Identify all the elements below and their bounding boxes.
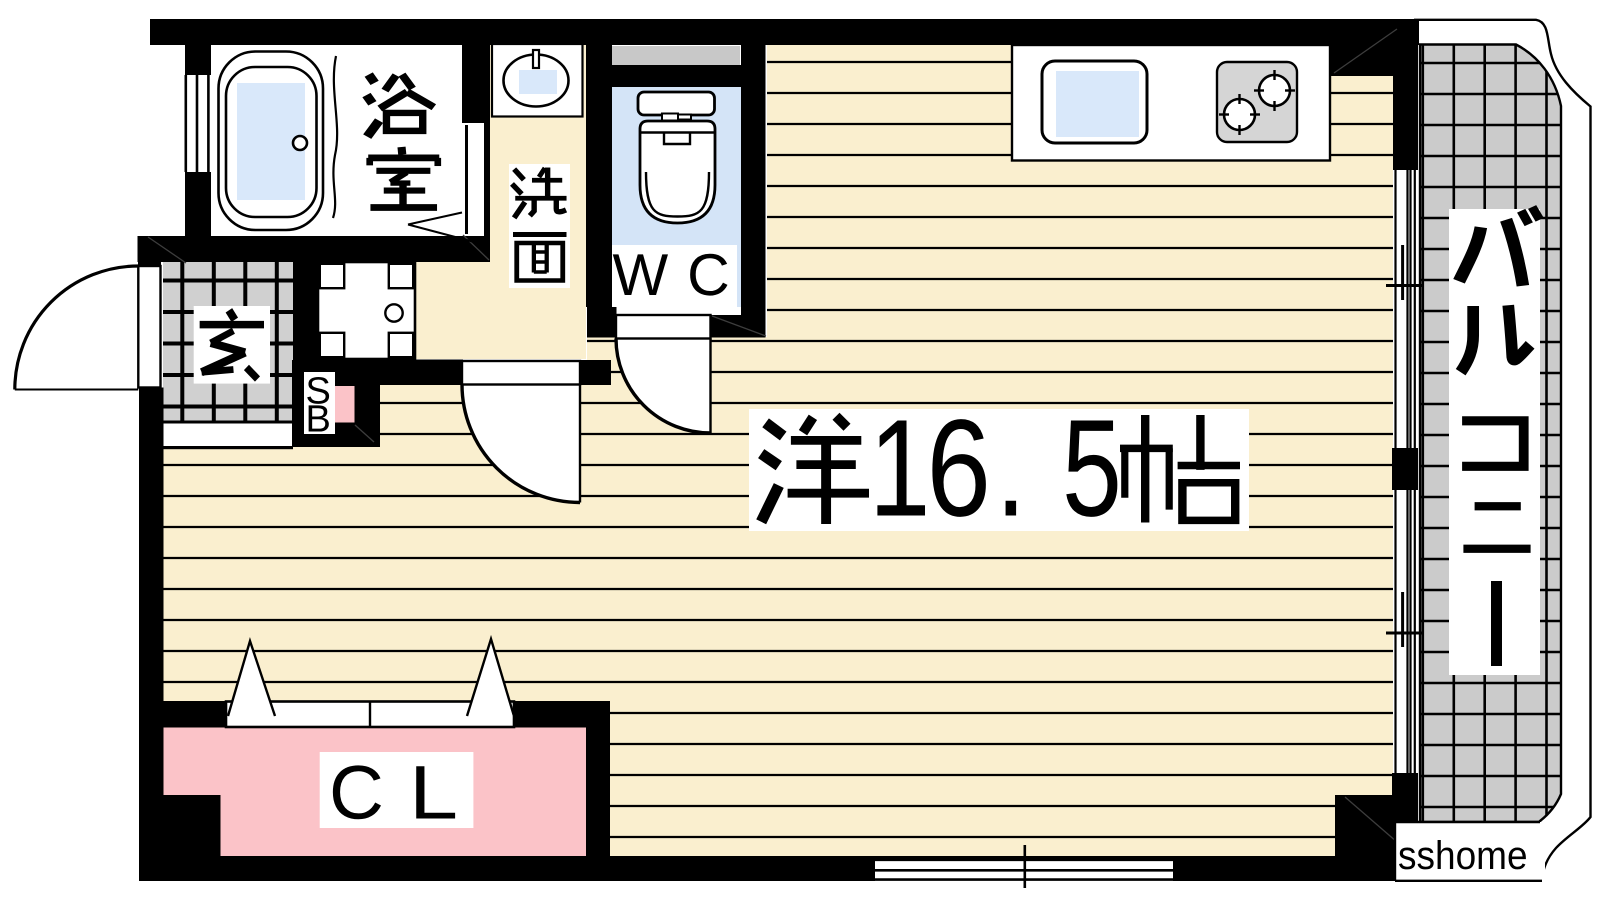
svg-text:5: 5 — [1062, 392, 1122, 546]
svg-text:.: . — [996, 392, 1027, 546]
svg-text:B: B — [306, 399, 331, 441]
svg-text:6: 6 — [927, 392, 991, 546]
svg-text:sshome: sshome — [1398, 834, 1528, 878]
svg-text:L: L — [409, 750, 458, 835]
svg-text:C: C — [329, 750, 384, 835]
svg-text:1: 1 — [869, 392, 930, 546]
svg-text:WC: WC — [613, 242, 749, 308]
